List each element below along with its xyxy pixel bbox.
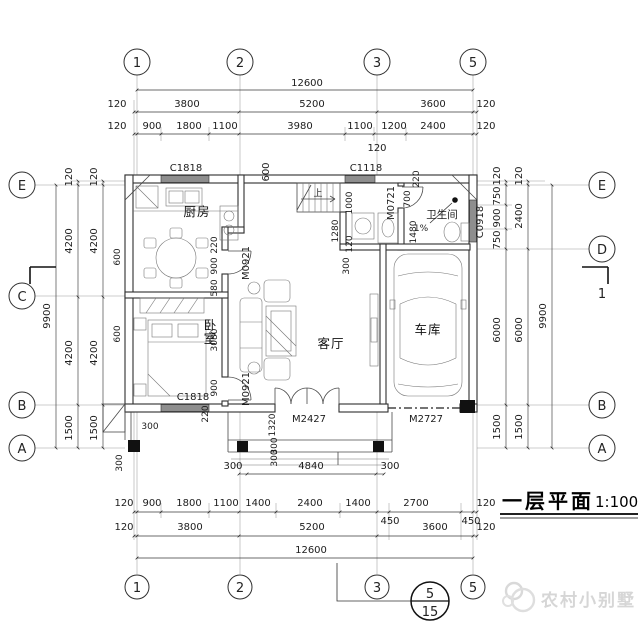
watermark: 农村小别墅 <box>503 583 636 611</box>
dim-label: 9900 <box>42 303 53 328</box>
dim-label: 1280 <box>331 219 341 242</box>
room-label-bedroom: 卧室 <box>202 319 217 346</box>
dim-label: 1100 <box>347 121 372 132</box>
dim-label: 900 <box>210 257 220 274</box>
callout-number: 5 <box>426 587 434 602</box>
dim-label: 4200 <box>89 228 100 253</box>
dim-label: 120 <box>476 522 495 533</box>
window-label: C1118 <box>350 163 382 174</box>
room-label-living: 客厅 <box>317 336 344 351</box>
axis-label: A <box>598 442 607 457</box>
door-label: M2427 <box>292 414 326 425</box>
dim-label: 3800 <box>177 522 202 533</box>
column <box>373 441 384 452</box>
dim-label: 2700 <box>403 498 428 509</box>
axis-label: 2 <box>236 581 244 596</box>
drawing-scale: 1:100 <box>595 493 638 511</box>
door-label: M0921 <box>241 246 252 280</box>
dim-label: 600 <box>261 162 272 181</box>
dim-label: 1320 <box>268 413 278 436</box>
dim-label: 300 <box>141 422 158 432</box>
dim-label: 700 <box>403 190 413 207</box>
dim-label: 4200 <box>89 340 100 365</box>
dim-label: 120 <box>476 99 495 110</box>
dim-label: 3800 <box>174 99 199 110</box>
window-kitchen <box>161 176 209 183</box>
dim-label: 3600 <box>420 99 445 110</box>
dim-label: 9900 <box>538 303 549 328</box>
axis-label: C <box>17 290 26 305</box>
dim-label: 750 <box>492 230 503 249</box>
axis-label: 1 <box>133 56 141 71</box>
dim-label: 220 <box>210 236 220 253</box>
door-label: M2727 <box>409 414 443 425</box>
dim-label: 900 <box>492 208 503 227</box>
dim-label: 300 <box>270 449 280 466</box>
axis-label: E <box>18 179 26 194</box>
room-label-garage: 车库 <box>414 322 441 337</box>
window-label: C1818 <box>170 163 202 174</box>
axis-label: 5 <box>469 581 477 596</box>
dim-label: 1000 <box>345 191 355 214</box>
dim-label: 120 <box>64 167 75 186</box>
dim-label: 2400 <box>420 121 445 132</box>
dim-label: 900 <box>142 498 161 509</box>
dim-label: 600 <box>113 248 123 265</box>
window-stair <box>345 176 375 183</box>
door-label: M0921 <box>241 372 252 406</box>
stair-up-label: 上 <box>313 188 322 199</box>
axis-label: 5 <box>469 56 477 71</box>
dim-label: 12600 <box>291 78 323 89</box>
column <box>237 441 248 452</box>
dim-label: 1800 <box>176 498 201 509</box>
dim-label: 120 <box>89 167 100 186</box>
dim-label: 300 <box>115 454 125 471</box>
dim-label: 3980 <box>287 121 312 132</box>
dim-label: 6000 <box>514 317 525 342</box>
dim-label: 1400 <box>345 498 370 509</box>
dim-label: 1400 <box>245 498 270 509</box>
dim-label: 1200 <box>381 121 406 132</box>
dim-label: 2400 <box>514 203 525 228</box>
dim-label: 5200 <box>299 522 324 533</box>
column <box>460 400 475 413</box>
dim-label: 220 <box>412 170 422 187</box>
dim-label: 4200 <box>64 340 75 365</box>
dim-label: 5200 <box>299 99 324 110</box>
axis-label: B <box>18 399 27 414</box>
walls <box>125 175 477 412</box>
dim-label: 900 <box>142 121 161 132</box>
dim-label: 120 <box>367 143 386 154</box>
axis-label: 2 <box>236 56 244 71</box>
axis-label: A <box>18 442 27 457</box>
floor-plan-page: 12600 120 3800 5200 3600 120 120 900 180… <box>0 0 640 622</box>
dim-label: 4840 <box>298 461 323 472</box>
watermark-logo-icon <box>503 583 534 611</box>
floor-drain <box>452 197 458 203</box>
window-label: C0918 <box>475 206 486 238</box>
dim-label: 120 <box>476 121 495 132</box>
axis-label: E <box>598 179 606 194</box>
door-label: M0721 <box>386 186 397 220</box>
dim-label: 300 <box>223 461 242 472</box>
slope-label: 1% <box>414 224 429 234</box>
dim-label: 750 <box>492 186 503 205</box>
dim-label: 450 <box>380 516 399 527</box>
dim-label: 1500 <box>514 414 525 439</box>
column <box>128 440 140 452</box>
callout-sheet: 15 <box>422 605 439 620</box>
room-label-bathroom: 卫生间 <box>426 208 458 221</box>
dim-label: 120 <box>114 522 133 533</box>
dim-label: 900 <box>210 379 220 396</box>
dim-label: 300 <box>380 461 399 472</box>
dim-label: 12600 <box>295 545 327 556</box>
axis-label: B <box>598 399 607 414</box>
dim-label: 120 <box>114 498 133 509</box>
dim-label: 2400 <box>297 498 322 509</box>
dim-label: 6000 <box>492 317 503 342</box>
window-label: C1818 <box>177 392 209 403</box>
dim-label: 1800 <box>176 121 201 132</box>
floor-plan-drawing: 12600 120 3800 5200 3600 120 120 900 180… <box>0 0 640 622</box>
dim-label: 300 <box>342 257 352 274</box>
detail-callout: 5 15 <box>337 563 449 620</box>
title-block: 一层平面 1:100 <box>500 489 638 518</box>
dim-label: 3600 <box>422 522 447 533</box>
dim-label: 1100 <box>213 498 238 509</box>
drawing-title: 一层平面 <box>502 489 594 513</box>
living-furniture <box>240 280 378 380</box>
axis-label: 3 <box>373 56 381 71</box>
section-marks: 1 <box>30 267 608 302</box>
dim-label: 120 <box>107 121 126 132</box>
dim-label: 120 <box>492 166 503 185</box>
dim-label: 580 <box>210 279 220 296</box>
dim-label: 1500 <box>492 414 503 439</box>
dim-label: 600 <box>113 325 123 342</box>
room-label-kitchen: 厨房 <box>183 204 210 219</box>
dim-label: 120 <box>345 235 355 252</box>
axis-label: 1 <box>133 581 141 596</box>
dim-label: 220 <box>201 405 211 422</box>
dim-label: 120 <box>476 498 495 509</box>
axis-label: D <box>597 243 607 258</box>
watermark-text: 农村小别墅 <box>540 590 636 611</box>
dim-label: 4200 <box>64 228 75 253</box>
dim-label: 1500 <box>89 415 100 440</box>
dim-label: 120 <box>514 166 525 185</box>
dim-label: 120 <box>107 99 126 110</box>
axis-label: 3 <box>373 581 381 596</box>
dim-label: 1100 <box>212 121 237 132</box>
dim-label: 1500 <box>64 415 75 440</box>
bedroom-furniture <box>134 298 206 396</box>
section-number: 1 <box>598 287 606 302</box>
